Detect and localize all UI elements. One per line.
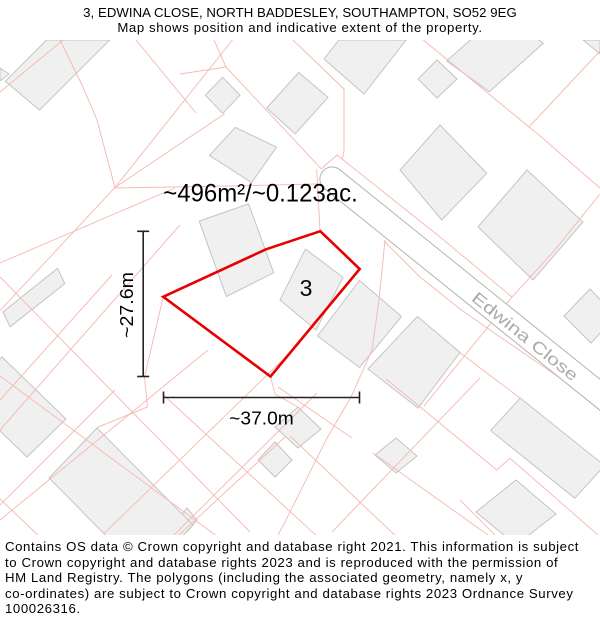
svg-text:3: 3: [300, 275, 313, 301]
svg-text:~496m²/~0.123ac.: ~496m²/~0.123ac.: [163, 179, 358, 207]
svg-text:~27.6m: ~27.6m: [117, 272, 137, 338]
svg-text:~37.0m: ~37.0m: [229, 409, 294, 429]
svg-text:Edwina Close: Edwina Close: [468, 289, 581, 385]
